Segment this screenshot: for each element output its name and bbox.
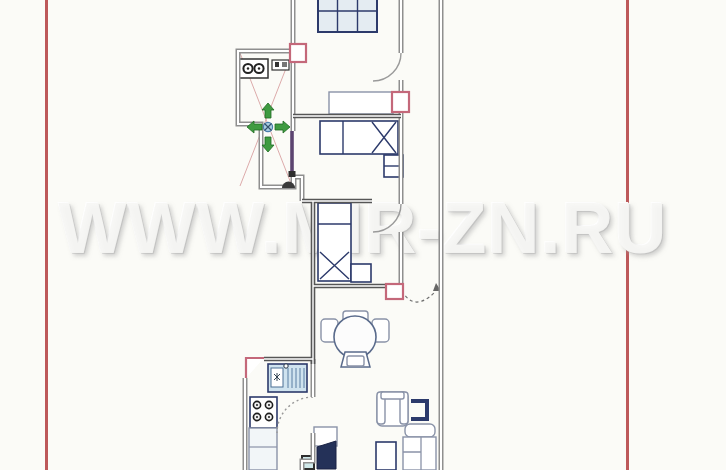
vent-corner-kitchen xyxy=(246,358,264,378)
vent-marker-right xyxy=(392,92,409,112)
door-arc-main-bedroom xyxy=(373,204,401,232)
top-room-sofa xyxy=(329,92,393,114)
floor-plan-drawing xyxy=(0,0,726,470)
scanned-floorplan-image: WWW.MIR-ZN.RU xyxy=(0,0,726,470)
kitchen-counter xyxy=(249,428,277,470)
hall-shelf xyxy=(272,60,289,70)
dining-set xyxy=(321,311,389,367)
vent-marker-top xyxy=(290,44,306,62)
nightstand-2 xyxy=(351,264,371,282)
sofa xyxy=(403,424,436,470)
door-arc-top-room xyxy=(373,53,401,81)
tv-shelf-bracket xyxy=(411,401,427,419)
grid-wardrobe xyxy=(318,0,377,32)
bed-horizontal xyxy=(320,121,403,177)
ceiling-point-green-arrows xyxy=(247,103,290,152)
armchair xyxy=(377,392,408,426)
arrow-down xyxy=(262,137,274,152)
vent-marker-bottom xyxy=(386,284,403,299)
washing-machine xyxy=(239,59,268,78)
kitchen-sink-unit xyxy=(268,364,307,392)
stove-four-burner xyxy=(250,397,277,428)
coffee-table xyxy=(376,442,396,470)
purple-door-leaf xyxy=(289,131,296,177)
bed-vertical xyxy=(318,203,371,282)
tv-set xyxy=(314,427,337,469)
door-arc-kitchen xyxy=(277,397,313,433)
arrow-up xyxy=(262,103,274,118)
arrow-right xyxy=(275,121,290,133)
balcony-door-swing-dashed xyxy=(402,291,434,302)
